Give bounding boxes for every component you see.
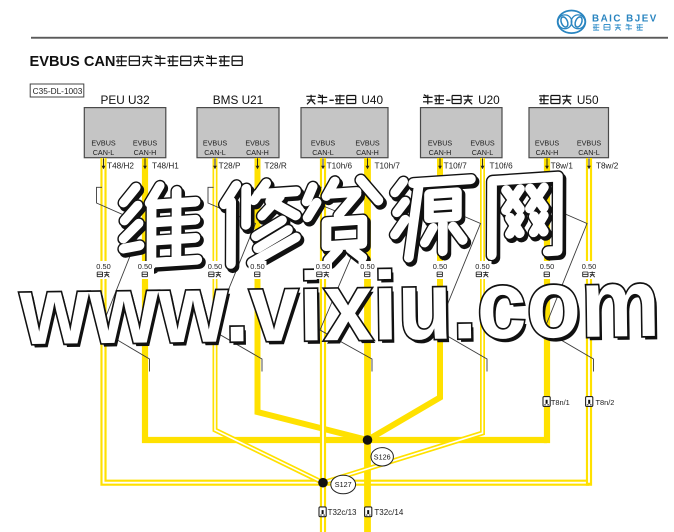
svg-text:EVBUS: EVBUS (311, 139, 336, 148)
svg-text:S126: S126 (374, 452, 391, 461)
svg-text:CAN-H: CAN-H (429, 148, 452, 157)
svg-text:T28/R: T28/R (265, 162, 287, 171)
svg-text:T8n/2: T8n/2 (596, 398, 615, 407)
svg-text:T10f/7: T10f/7 (444, 162, 468, 171)
svg-text:U50: U50 (577, 93, 599, 107)
svg-text:0.50: 0.50 (360, 262, 374, 271)
svg-text:EVBUS CAN: EVBUS CAN (30, 54, 116, 70)
svg-text:EVBUS: EVBUS (470, 139, 495, 148)
svg-text:C35-DL-1003: C35-DL-1003 (33, 86, 83, 96)
svg-text:www.vixiu.com: www.vixiu.com (18, 248, 660, 365)
svg-text:T8w/2: T8w/2 (596, 162, 619, 171)
svg-text:T10f/6: T10f/6 (490, 162, 514, 171)
svg-text:EVBUS: EVBUS (91, 139, 116, 148)
svg-text:EVBUS: EVBUS (535, 139, 560, 148)
svg-text:CAN-H: CAN-H (246, 148, 269, 157)
svg-text:T8w/1: T8w/1 (551, 162, 574, 171)
svg-text:0.50: 0.50 (250, 262, 264, 271)
svg-text:T8n/1: T8n/1 (551, 398, 570, 407)
svg-text:CAN-H: CAN-H (536, 148, 559, 157)
svg-text:CAN-H: CAN-H (356, 148, 379, 157)
svg-text:BAIC BJEV: BAIC BJEV (592, 14, 658, 25)
svg-text:S127: S127 (335, 480, 352, 489)
svg-text:T28/P: T28/P (219, 162, 241, 171)
svg-text:U40: U40 (361, 93, 383, 107)
svg-text:EVBUS: EVBUS (245, 139, 270, 148)
svg-text:0.50: 0.50 (208, 262, 222, 271)
svg-text:0.50: 0.50 (582, 262, 596, 271)
svg-text:CAN-L: CAN-L (578, 148, 600, 157)
svg-text:CAN-L: CAN-L (312, 148, 334, 157)
svg-text:PEU U32: PEU U32 (101, 93, 150, 107)
svg-text:EVBUS: EVBUS (577, 139, 602, 148)
svg-text:EVBUS: EVBUS (355, 139, 380, 148)
svg-text:T32c/14: T32c/14 (374, 508, 403, 517)
svg-text:EVBUS: EVBUS (428, 139, 453, 148)
svg-text:T10h/6: T10h/6 (327, 162, 353, 171)
svg-text:T48/H2: T48/H2 (107, 162, 134, 171)
svg-text:T48/H1: T48/H1 (152, 162, 179, 171)
svg-text:0.50: 0.50 (138, 262, 152, 271)
svg-text:0.50: 0.50 (433, 262, 447, 271)
svg-text:0.50: 0.50 (96, 262, 110, 271)
svg-text:CAN-H: CAN-H (134, 148, 157, 157)
svg-text:T10h/7: T10h/7 (375, 162, 401, 171)
svg-text:EVBUS: EVBUS (133, 139, 158, 148)
svg-text:0.50: 0.50 (540, 262, 554, 271)
svg-text:CAN-L: CAN-L (204, 148, 226, 157)
svg-text:T32c/13: T32c/13 (328, 508, 357, 517)
svg-text:U20: U20 (478, 93, 500, 107)
svg-text:EVBUS: EVBUS (203, 139, 228, 148)
svg-text:CAN-L: CAN-L (472, 148, 494, 157)
svg-text:CAN-L: CAN-L (93, 148, 115, 157)
svg-text:0.50: 0.50 (316, 262, 330, 271)
svg-text:0.50: 0.50 (475, 262, 489, 271)
svg-text:BMS U21: BMS U21 (213, 93, 263, 107)
